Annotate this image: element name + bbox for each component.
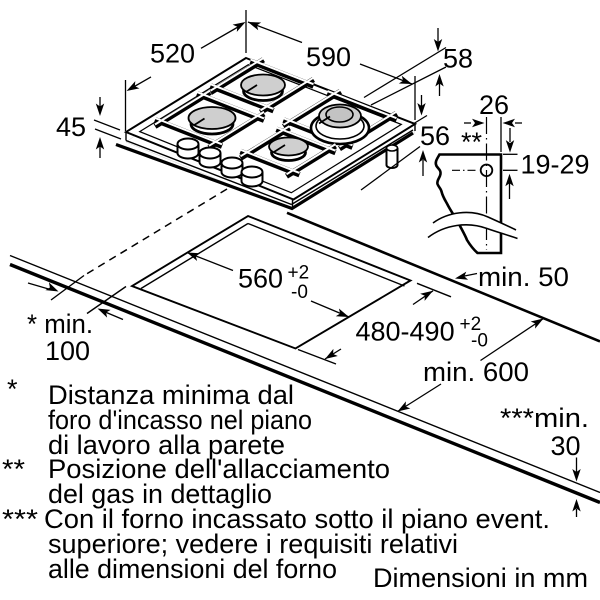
- svg-text:*: *: [7, 374, 18, 404]
- svg-text:+2: +2: [288, 263, 310, 284]
- svg-text:100: 100: [45, 336, 90, 366]
- svg-text:19-29: 19-29: [521, 150, 590, 180]
- svg-text:* min.: * min.: [27, 309, 93, 339]
- svg-text:30: 30: [551, 431, 581, 461]
- svg-text:480-490: 480-490: [356, 317, 455, 347]
- svg-text:Dimensioni in mm: Dimensioni in mm: [373, 563, 588, 593]
- svg-text:min. 600: min. 600: [423, 357, 529, 387]
- svg-text:56: 56: [420, 121, 450, 151]
- svg-text:***: ***: [2, 504, 39, 534]
- svg-text:***min.: ***min.: [500, 403, 589, 433]
- svg-text:**: **: [461, 127, 483, 157]
- svg-text:**: **: [2, 454, 26, 484]
- svg-text:-0: -0: [291, 282, 308, 303]
- svg-text:590: 590: [306, 42, 351, 72]
- svg-text:min. 50: min. 50: [478, 262, 569, 292]
- svg-text:560: 560: [238, 264, 283, 294]
- svg-text:45: 45: [56, 112, 86, 142]
- svg-text:alle dimensioni del forno: alle dimensioni del forno: [48, 554, 337, 584]
- svg-text:26: 26: [479, 90, 509, 120]
- svg-text:520: 520: [150, 39, 195, 69]
- svg-text:58: 58: [443, 44, 473, 74]
- svg-text:-0: -0: [471, 331, 488, 352]
